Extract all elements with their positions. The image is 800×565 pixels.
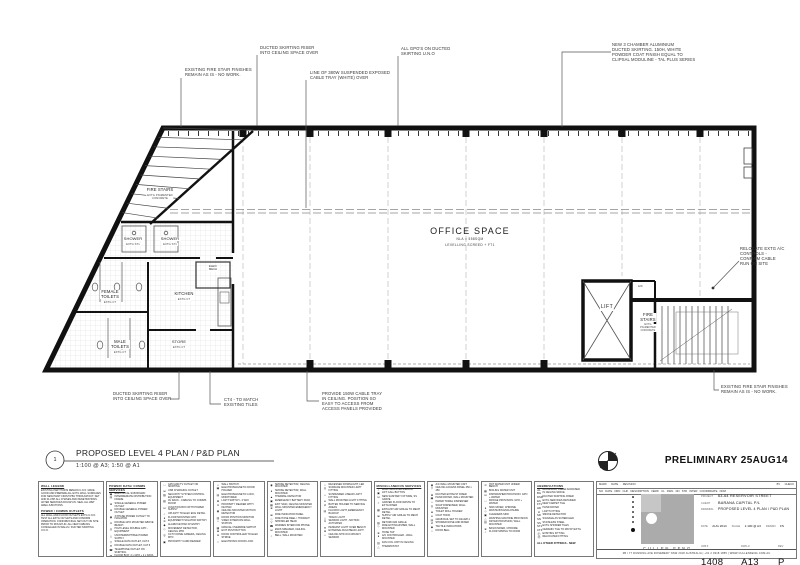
legend-symbol: ⊘ <box>323 504 327 507</box>
client-value: BARANA CAPITAL P/L <box>718 501 760 505</box>
legend-item-label: CCTV DOME CAMERA, CEILING MTD <box>168 534 208 540</box>
plan-scale: 1:100 @ A3; 1:50 @ A1 <box>76 463 140 469</box>
annotation-cable-tray-ceiling: PROVIDE 150W CABLE TRAY IN CEILING. POSI… <box>322 392 382 412</box>
legend-symbol: ⊙ <box>323 520 327 523</box>
legend-symbol: ○ <box>430 530 434 533</box>
legend-item-label: DOUBLE GENERAL POWER OUTLET <box>115 509 155 515</box>
legend-symbol: ◉ <box>109 516 113 519</box>
annotation-new-skirting: NEW 3 CHAMBER ALUMINIUM DUCTED SKIRTING.… <box>612 43 695 63</box>
legend-symbol: ▤ <box>109 496 113 499</box>
dwg-label: DWG # <box>741 545 750 548</box>
legend-symbol: ≈ <box>377 502 381 505</box>
legend-item-label: FLOOR BOX: 2 x GPO + 2 x DATA <box>115 555 154 557</box>
firm-contact: 3B / 77 DUNNING AVE ROSEBERY NSW 2018 AU… <box>597 549 796 558</box>
annotation-cable-tray-line: LINE OF 380W SUSPENDED EXPOSED CABLE TRA… <box>310 71 390 81</box>
room-label-lift: LIFT <box>600 305 614 311</box>
room-label-fire-stairs-left: FIRE STAIRS <box>146 188 175 193</box>
job-label: JOB # <box>701 545 708 548</box>
rev-label: REV <box>778 545 783 548</box>
legend-item-label: FRIDGE PROVISION: GPO + WATER <box>489 500 529 506</box>
legend-item-label: THERMOSTAT <box>382 546 399 549</box>
room-label-female-toilets: FEMALE TOILETS <box>100 290 120 299</box>
legend-item: ◎CCTV DOME CAMERA, CEILING MTD <box>163 534 209 540</box>
legend-item: ○DOOR BELL <box>430 530 476 533</box>
plan-number: 1 <box>53 457 56 463</box>
legend-item: ▦FLOOR BOX: 2 x GPO + 2 x DATA <box>109 555 155 557</box>
legend-item-label: AV RACK - CABLING TO COMMS ROOM <box>168 500 208 506</box>
cable-tray-line <box>170 210 751 214</box>
legend-symbol: ⊡ <box>216 534 220 537</box>
lift-shaft <box>583 281 631 360</box>
legend-symbol: ▨ <box>163 500 167 503</box>
legend-item: ⊕DOUBLE GENERAL POWER OUTLET <box>109 509 155 515</box>
legend-symbol: ⊡ <box>163 507 167 510</box>
service-risers <box>744 148 752 178</box>
legend-symbol: ● <box>270 490 274 493</box>
legend-symbol: ⊟ <box>270 529 274 532</box>
legend-item-label: BELL, WALL MOUNTED <box>275 535 302 538</box>
legend-item: ▣PROXIMITY CARD READER <box>163 541 209 544</box>
legend-symbol: ◇ <box>377 525 381 528</box>
legend-item-label: FLOOR SPRING TO DOOR <box>489 531 520 534</box>
title-block: MARK DATE REVISION BY CHECK NO DATE DRN … <box>596 481 797 559</box>
legend-symbol: ≈ <box>216 541 220 544</box>
room-label-ac: A/C <box>638 285 643 288</box>
legend-symbol: ☎ <box>109 549 113 552</box>
project-value: 63-64 RESERVOIR STREET <box>718 494 772 498</box>
client-label: CLIENT <box>701 502 716 505</box>
legend-column-6: ◉A/C WALL MOUNTED UNIT▽CEILING ACCESS PA… <box>427 481 479 557</box>
cullen-feng-logo <box>641 494 694 544</box>
legend-item: ○BELL, WALL MOUNTED <box>270 535 316 538</box>
status-stamp: PRELIMINARY 25AUG14 <box>655 455 788 466</box>
legend-symbol: □ <box>163 484 167 487</box>
legend: WALL LEGEND EXISTING PARTITIONS REMAIN U… <box>38 481 594 557</box>
legend-symbol: ◎ <box>323 487 327 490</box>
legend-symbol: ⊕ <box>270 507 274 510</box>
legend-symbol: ⊕ <box>109 509 113 512</box>
binding-marks <box>631 496 635 532</box>
legend-symbol: ◉ <box>216 510 220 513</box>
right-stairs <box>660 306 738 364</box>
legend-item-label: DOOR BELL <box>436 530 450 533</box>
legend-item: ○FLOOR SPRING TO DOOR <box>484 531 530 534</box>
legend-symbol: ▽ <box>430 487 434 490</box>
legend-symbol: ● <box>377 535 381 538</box>
rev-value: P <box>778 557 785 565</box>
legend-symbol: □ <box>484 500 488 503</box>
legend-symbol: ▤ <box>216 494 220 497</box>
dwg-number: A13 <box>741 557 759 565</box>
legend-item: ⊡DOOR CONTROLLER TO ELEC STRIKE <box>216 534 262 540</box>
annotation-gpos: ALL GPO'S ON DUCTED SKIRTING U.N.O <box>401 47 450 57</box>
room-sublabel-shower-2: EXTG ST1 <box>162 243 178 246</box>
legend-column-7: ⊙HOT WATER UNIT UNDER BENCH▦BOILING WATE… <box>481 481 533 557</box>
room-sublabel-male-toilets: EXTG CT <box>113 351 127 354</box>
annotation-ct4: CT4 - TO MATCH EXISTING TILES <box>224 398 258 408</box>
legend-symbol: ⊙ <box>216 504 220 507</box>
legend-column-header: ABBREVIATIONS <box>537 484 591 488</box>
plan-title: PROPOSED LEVEL 4 PLAN / P&D PLAN <box>76 448 240 458</box>
room-sublabel-office-nla: NLA = 558SQM <box>455 238 484 242</box>
revision-header-right: BY CHECK <box>777 482 794 488</box>
drawing-value: PROPOSED LEVEL 4 PLAN / P&D PLAN <box>718 507 789 511</box>
legend-column-2: □WALL SWITCH▣ELECTROMAGNETIC DOOR HOLDER… <box>213 481 265 557</box>
legend-symbol: □ <box>323 494 327 497</box>
annotation-skirting-riser-top: DUCTED SKIRTING RISER INTO CEILING SPACE… <box>260 46 318 56</box>
annotation-relocate-ac: RELOCATE EXTG A/C CONTROLS - CONFIRM CAB… <box>740 247 794 267</box>
room-label-office-space: OFFICE SPACE <box>429 226 511 236</box>
room-sublabel-shower-1: EXTG ST1 <box>125 243 141 246</box>
legend-item: □FRIDGE PROVISION: GPO + WATER <box>484 500 530 506</box>
legend-item: △THERMOSTAT <box>377 546 423 549</box>
room-label-shower-2: SHOWER <box>160 237 181 241</box>
legend-symbol: ⊙ <box>109 522 113 525</box>
room-label-kitchen: KITCHEN <box>173 292 194 297</box>
room-sublabel-female-toilets: EXTG CT <box>103 301 117 304</box>
legend-item: ⓇRELOCATED FITTING <box>537 536 591 539</box>
job-number: 1408 <box>701 557 723 565</box>
drawing-sheet: FIRE STAIRS EXTG PIGMENTED CONCRETE SHOW… <box>0 0 800 565</box>
legend-column-header: MISCELLANEOUS SERVICES <box>377 484 423 488</box>
legend-symbol: ○ <box>270 535 274 538</box>
legend-column-5: MISCELLANEOUS SERVICES○WALL MOUNTED MIRR… <box>374 481 426 557</box>
legend-column-8: ABBREVIATIONSALALUMINIUM, CLEAR ANODISED… <box>534 481 594 557</box>
legend-symbol: ⊡ <box>484 494 488 497</box>
legend-column-3: ◉SMOKE DETECTOR, CEILING MOUNTED●SMOKE D… <box>267 481 319 557</box>
legend-symbol: ◇ <box>163 528 167 531</box>
legend-wall-body: EXISTING PARTITIONS REMAIN U.N.O. MAKE G… <box>41 489 101 507</box>
legend-item-label: RELOCATED FITTING <box>543 536 569 539</box>
legend-item-label: ELECTRONIC DOOR LOCK <box>222 541 254 544</box>
legend-item: □CEILING MTD OCCUPANCY SENSOR <box>323 534 369 540</box>
legend-column-footer: ALL OTHER FITTINGS - NEW <box>537 541 591 545</box>
legend-wall-column: WALL LEGEND EXISTING PARTITIONS REMAIN U… <box>38 481 104 557</box>
legend-symbol: ▤ <box>323 510 327 513</box>
legend-outlets-body: ALL WALL AND FLOOR OUTLETS EXTG U.N.O. T… <box>41 514 101 532</box>
legend-wall-header: WALL LEGEND <box>41 484 101 488</box>
legend-column-1: □GPO AND TV OUTLET ON SKIRTING⊟USB CHARG… <box>160 481 212 557</box>
room-sublabel-kitchen: EXTG CT <box>177 298 191 301</box>
room-label-male-toilets: MALE TOILETS <box>110 340 130 349</box>
room-label-fire-stairs-right: FIRE STAIRS <box>639 313 656 322</box>
legend-symbol: ○ <box>484 531 488 534</box>
columns <box>240 129 704 368</box>
north-symbol <box>599 452 618 471</box>
room-sublabel-office-screed: LEVELLING SCREED + FT1 <box>444 244 496 248</box>
revision-header-left: MARK DATE REVISION <box>599 482 636 488</box>
legend-outlets-header: POWER / COMMS OUTLETS <box>41 509 101 513</box>
legend-column-header: POWER/ DATA/ COMMS SERVICES <box>109 484 155 492</box>
room-sublabel-fire-stairs-left: EXTG PIGMENTED CONCRETE <box>146 194 173 200</box>
date-label: DATE <box>701 525 708 528</box>
room-sublabel-store: EXTG CT <box>172 346 186 349</box>
drawn-label: DRAWN <box>766 525 776 528</box>
annotation-fire-stair-top: EXISTING FIRE STAIR FINISHES REMAIN AS I… <box>185 68 252 78</box>
room-sublabel-fire-stairs-right: EXTG PIGMENTED CONCRETE <box>639 324 657 332</box>
legend-symbol: ◎ <box>430 505 434 508</box>
legend-column-4: ○RECESSED DOWNLIGHT, LED◎SURFACE MOUNTED… <box>320 481 372 557</box>
legend-symbol: ▥ <box>484 521 488 524</box>
legend-item-label: CEILING MTD OCCUPANCY SENSOR <box>329 534 369 540</box>
legend-symbol: △ <box>377 546 381 549</box>
legend-item: ≈ELECTRONIC DOOR LOCK <box>216 541 262 544</box>
legend-symbol: □ <box>323 534 327 537</box>
legend-symbol: ◎ <box>109 528 113 531</box>
legend-symbol: ▣ <box>216 487 220 490</box>
scale-label: SCALE <box>732 525 741 528</box>
legend-column-0: POWER/ DATA/ COMMS SERVICES▣ELECTRICAL S… <box>106 481 158 557</box>
date-value: AUG 2014 <box>712 524 726 528</box>
legend-symbol: ▦ <box>377 509 381 512</box>
drawing-label: DRAWING <box>701 508 716 511</box>
legend-symbol: ⊙ <box>484 484 488 487</box>
project-label: PROJECT <box>701 495 716 498</box>
legend-symbol: ⊡ <box>377 496 381 499</box>
room-label-store: STORE <box>171 340 187 344</box>
legend-item-label: PROXIMITY CARD READER <box>168 541 201 544</box>
legend-symbol: ▦ <box>109 555 113 557</box>
drawn-value: FS <box>780 524 784 528</box>
room-label-elec-mech: ELEC/ MECH <box>208 266 218 272</box>
legend-symbol: Ⓡ <box>537 536 541 539</box>
legend-symbol: ▧ <box>163 494 167 497</box>
room-label-shower-1: SHOWER <box>123 237 144 241</box>
annotation-fire-stair-bottom: EXISTING FIRE STAIR FINISHES REMAIN AS I… <box>721 385 788 395</box>
annotation-skirting-riser-bottom: DUCTED SKIRTING RISER INTO CEILING SPACE… <box>113 392 171 402</box>
legend-symbol: ⊞ <box>377 515 381 518</box>
scale-value: 1:100 @ A3 <box>745 524 761 528</box>
legend-item: ▨AV RACK - CABLING TO COMMS ROOM <box>163 500 209 506</box>
legend-symbol: ▣ <box>163 541 167 544</box>
legend-symbol: ⊕ <box>109 503 113 506</box>
legend-item-label: DOOR CONTROLLER TO ELEC STRIKE <box>222 534 262 540</box>
legend-symbol: □ <box>216 520 220 523</box>
leader-dot <box>712 287 715 290</box>
legend-symbol: ◎ <box>163 534 167 537</box>
legend-symbol: ◉ <box>270 484 274 487</box>
legend-symbol: △ <box>109 535 113 538</box>
